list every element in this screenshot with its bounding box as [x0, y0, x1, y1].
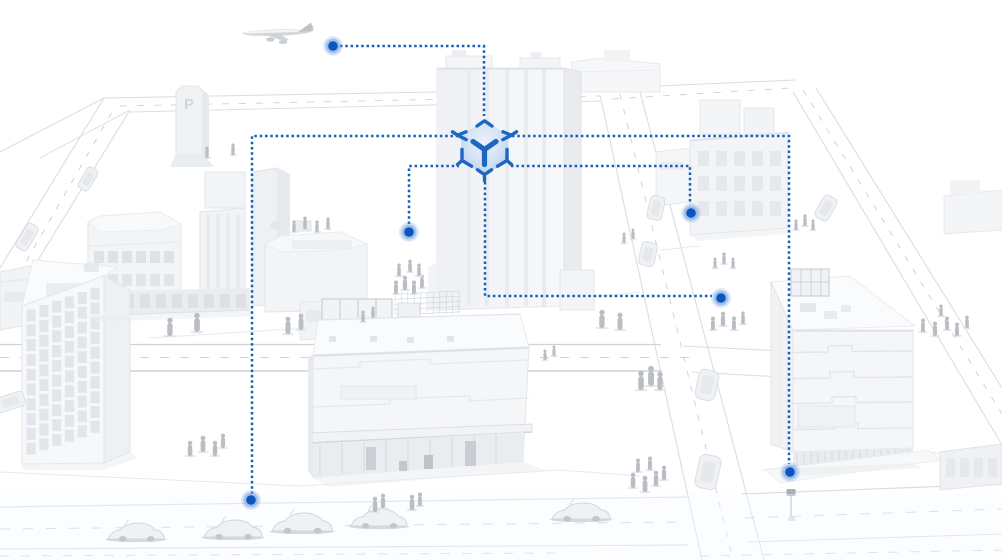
svg-text:P: P [184, 96, 194, 113]
